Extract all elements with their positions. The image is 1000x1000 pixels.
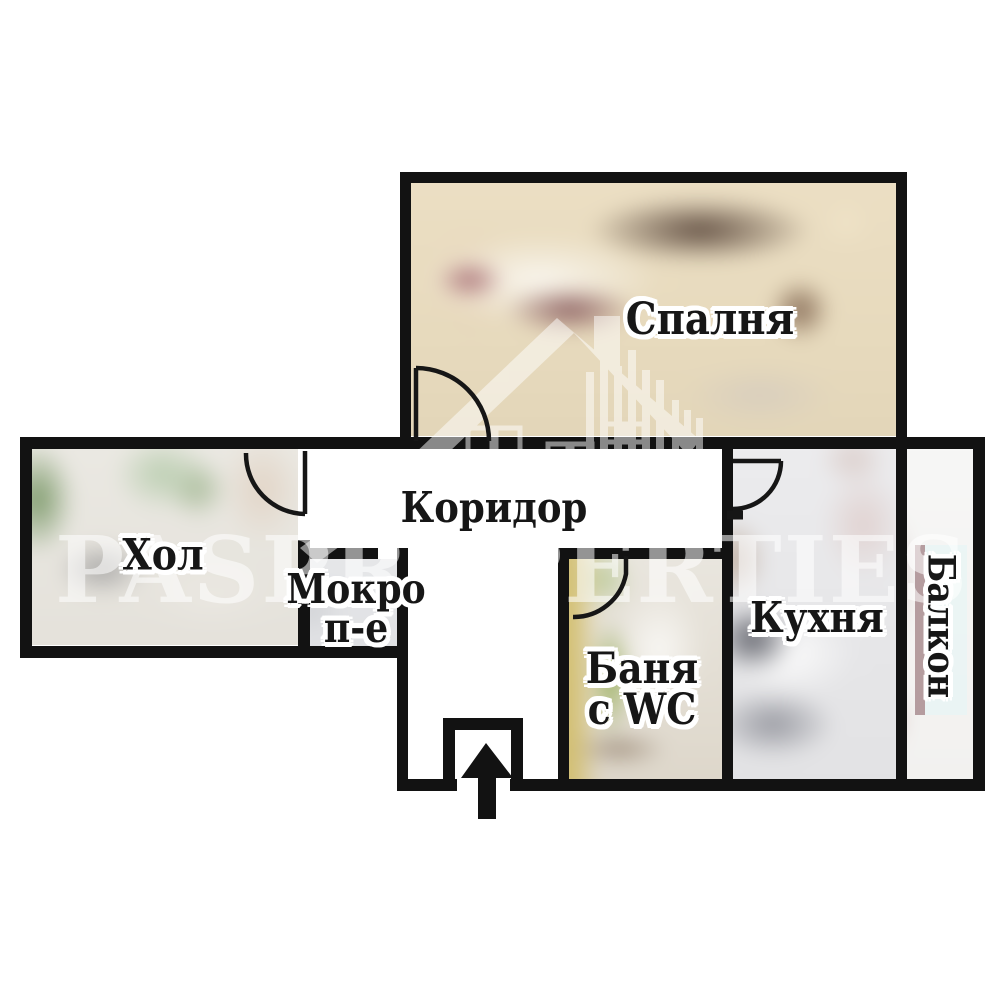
wall-bathroom-left <box>558 548 569 791</box>
wall-main-horizontal <box>20 437 985 449</box>
wall-balcony-right <box>973 437 985 791</box>
wet-room-label-line2: п-е <box>286 609 425 648</box>
wall-kitchen-right <box>896 437 907 791</box>
entrance-door-frame <box>443 718 523 791</box>
bathroom-label-line1: Баня <box>586 649 699 690</box>
bathroom-label: Баня с WC <box>586 649 699 731</box>
wall-wetroom-top <box>298 548 378 559</box>
balcony-label: Балкон <box>923 554 958 698</box>
bathroom-label-line2: с WC <box>586 690 699 731</box>
floor-plan: PAS PROPERTIES Спалня <box>0 0 1000 1000</box>
wall-bedroom-left <box>400 172 411 449</box>
bedroom-label: Спалня <box>626 299 794 341</box>
hall-label: Хол <box>122 536 203 577</box>
wall-kitchen-left <box>722 449 733 791</box>
wall-hall-left <box>20 437 32 658</box>
wet-room-label: Мокро п-е <box>286 570 425 648</box>
wall-bedroom-top <box>400 172 907 183</box>
wall-bathroom-top <box>558 548 731 559</box>
wall-bottom-right-segment <box>510 779 985 791</box>
wall-bedroom-right <box>896 172 907 449</box>
corridor-label: Коридор <box>401 488 588 528</box>
kitchen-label: Кухня <box>750 598 884 638</box>
